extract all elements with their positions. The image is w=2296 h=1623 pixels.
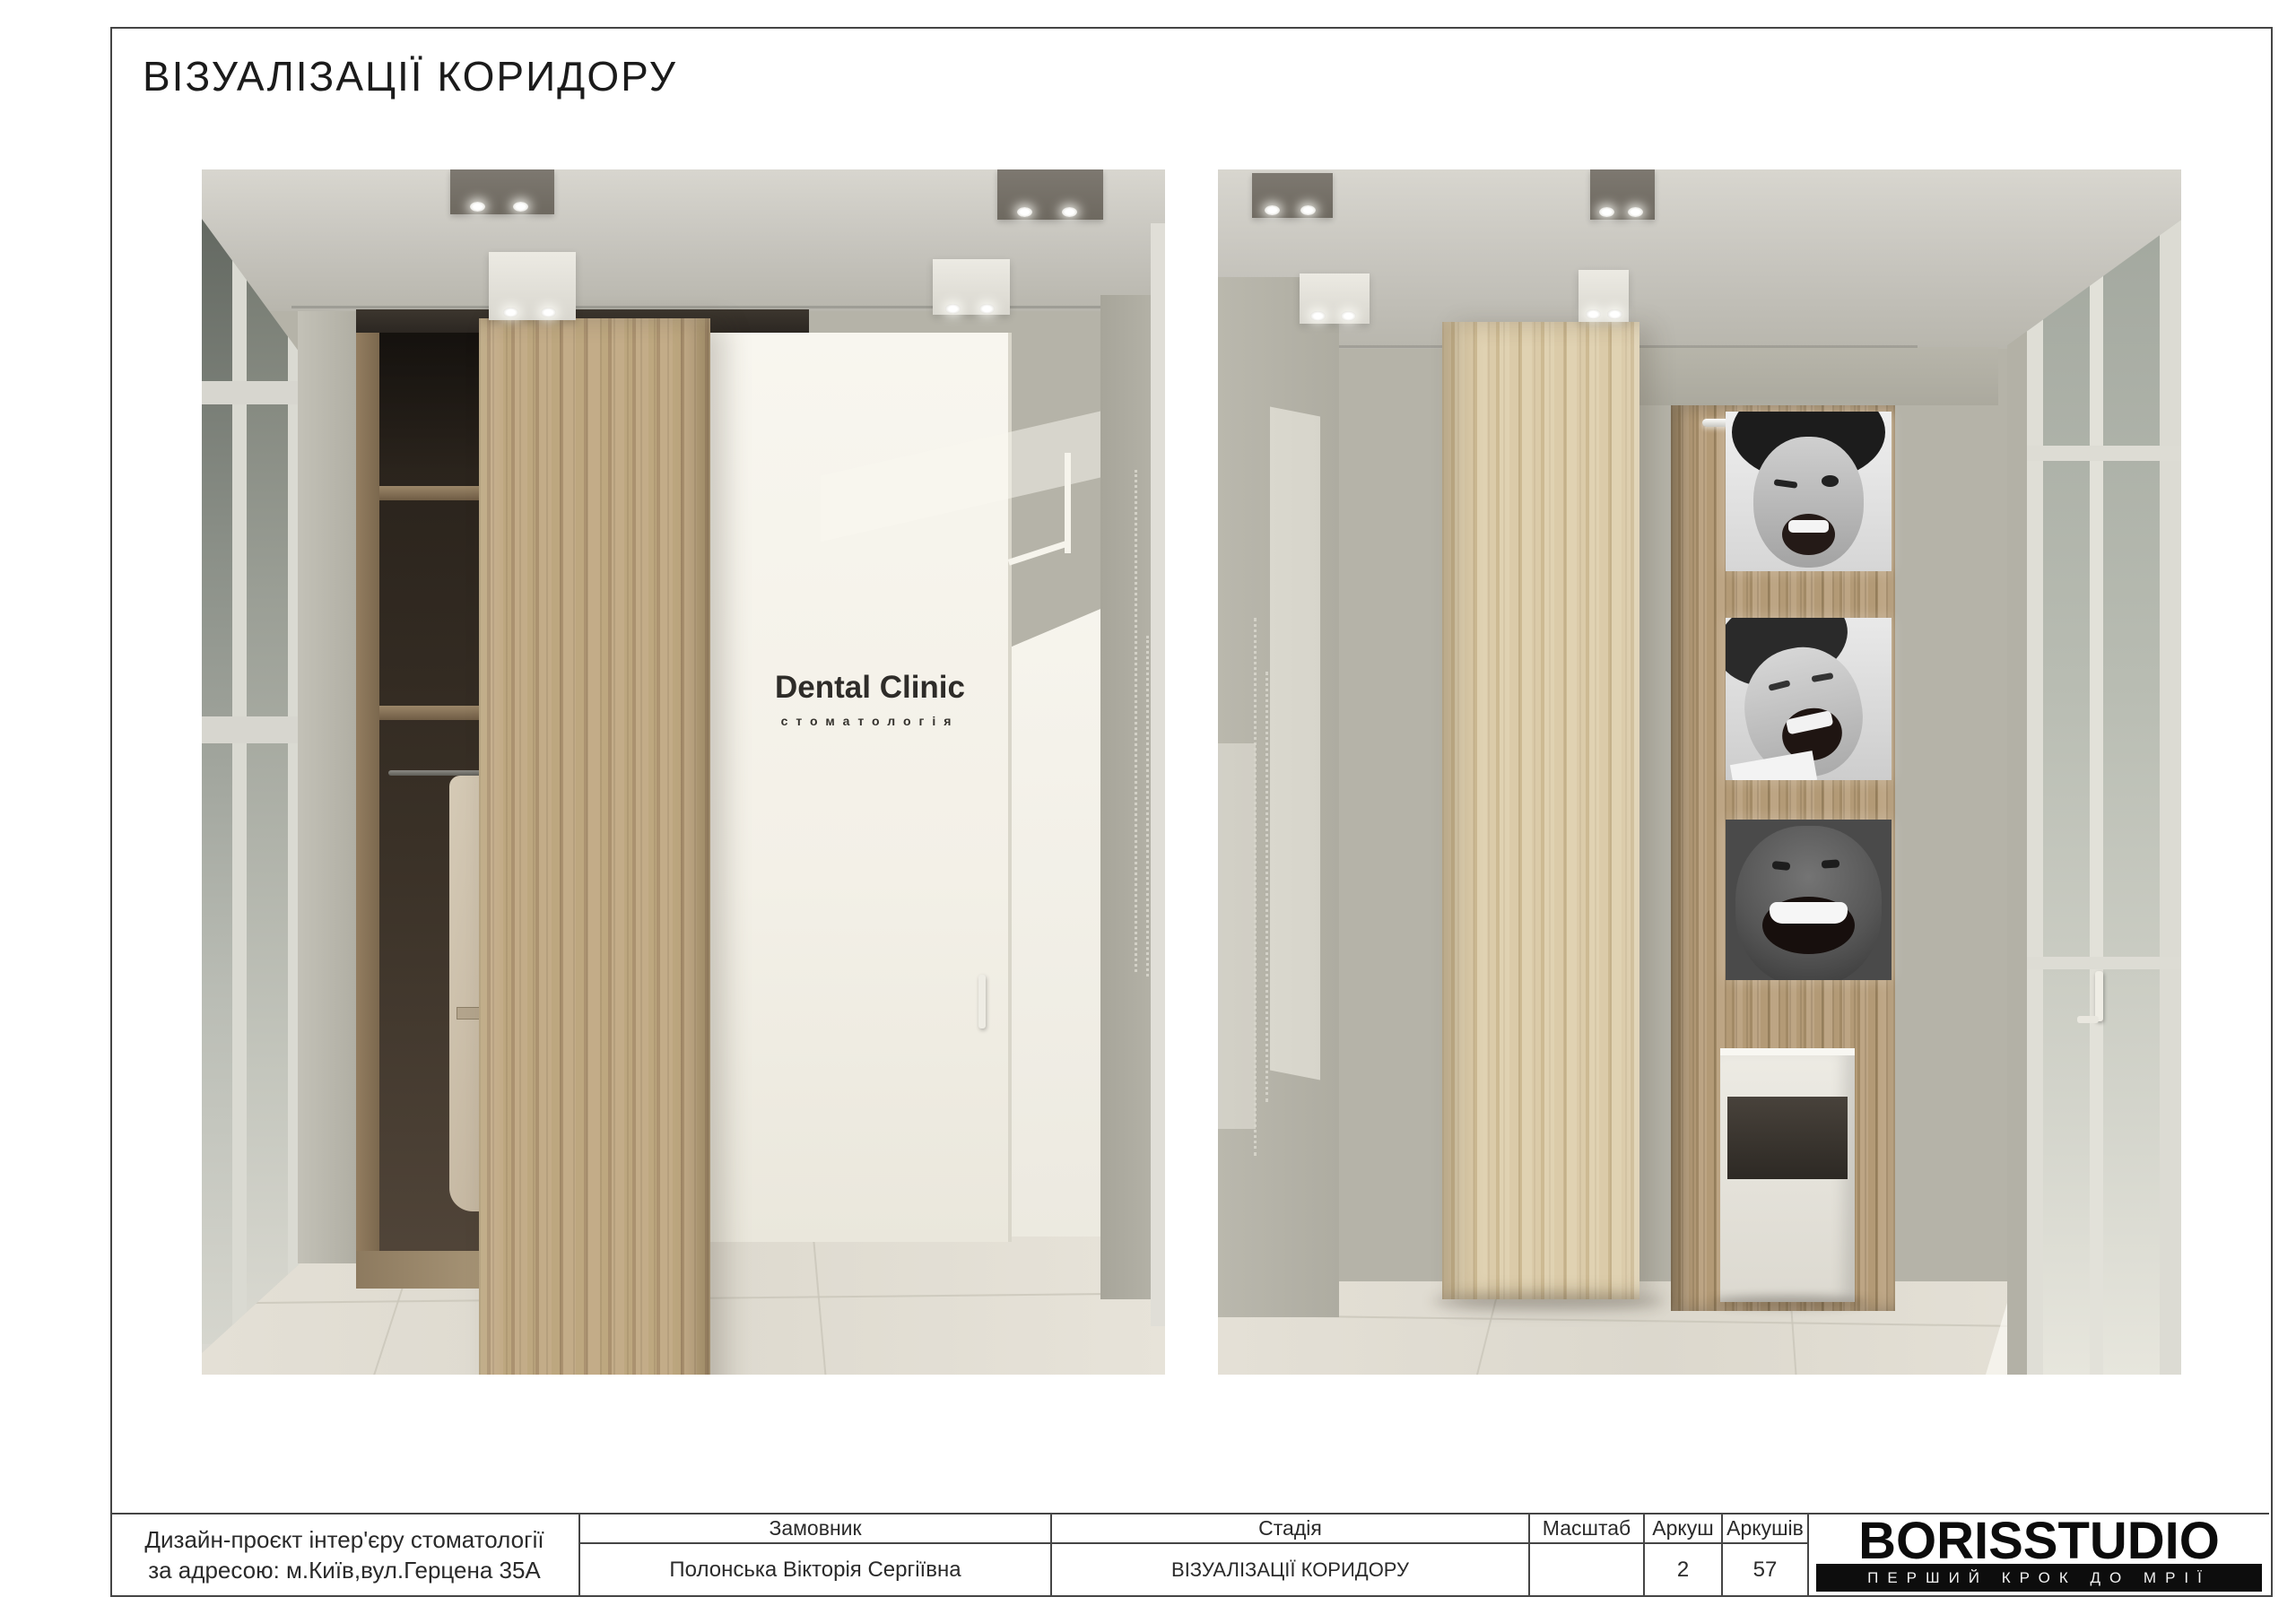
light-spot-icon	[945, 304, 961, 314]
light-spot-icon	[1310, 311, 1326, 321]
photo3-eye	[1822, 859, 1840, 868]
ceiling-light-box	[489, 252, 576, 320]
door-sign: Dental Clinic стоматологія	[744, 670, 996, 728]
portrait-photo-1	[1726, 412, 1892, 571]
light-spot-icon	[1607, 309, 1622, 319]
wood-column	[1442, 322, 1639, 1299]
portrait-photo-2	[1726, 618, 1892, 780]
glass-pane	[247, 169, 288, 1375]
light-spot-icon	[513, 202, 528, 212]
ceiling-light-box	[1578, 270, 1629, 322]
window-frame-bar	[2027, 220, 2043, 1375]
window-frame-bar	[2160, 220, 2181, 1375]
roller-blind-chain	[1265, 672, 1268, 1102]
light-spot-icon	[503, 308, 518, 317]
window-wall-right	[2007, 220, 2181, 1375]
stage-label: Стадія	[1052, 1515, 1528, 1544]
project-description-line2: за адресою: м.Київ,вул.Герцена 35А	[110, 1555, 578, 1585]
light-spot-icon	[1300, 205, 1316, 215]
scale-cell: Масштаб	[1530, 1515, 1645, 1595]
pedestal-floor-shadow	[1713, 1296, 1865, 1308]
photo1-eye	[1822, 475, 1839, 486]
title-block: Дизайн-проєкт інтер'єру стоматології за …	[110, 1513, 2269, 1595]
roller-blind-chain	[1146, 636, 1149, 976]
scale-label: Масштаб	[1530, 1515, 1643, 1544]
window-transom	[202, 716, 302, 743]
light-spot-icon	[1341, 311, 1356, 321]
photo2-teeth	[1786, 711, 1833, 736]
ceiling-light-box	[450, 169, 554, 214]
pedestal-dark-inset	[1727, 1097, 1848, 1179]
sunlight-band	[1218, 743, 1256, 1129]
light-spot-icon	[1017, 207, 1032, 217]
door-handle-lever	[2077, 1016, 2099, 1023]
sheets-total-cell: Аркушів 57	[1723, 1515, 1809, 1595]
sheet-number-cell: Аркуш 2	[1645, 1515, 1723, 1595]
window-frame-bar	[2090, 220, 2103, 1375]
portrait-photo-3	[1726, 820, 1892, 980]
sunlight-bracket-line	[1065, 453, 1071, 553]
pedestal-unit	[1720, 1048, 1855, 1302]
pedestal-top-face	[1720, 1048, 1855, 1055]
light-spot-icon	[1628, 207, 1643, 217]
door-handle	[2095, 971, 2103, 1021]
light-spot-icon	[1586, 309, 1601, 319]
ceiling-light-box	[1252, 173, 1333, 218]
stage-value: ВІЗУАЛІЗАЦІЇ КОРИДОРУ	[1052, 1544, 1528, 1595]
studio-logo-tagline: ПЕРШИЙ КРОК ДО МРІЇ	[1867, 1569, 2211, 1587]
page-title: ВІЗУАЛІЗАЦІЇ КОРИДОРУ	[143, 52, 677, 100]
client-label: Замовник	[580, 1515, 1050, 1544]
door-jamb	[2007, 220, 2027, 1375]
ceiling-light-box	[933, 259, 1010, 315]
light-spot-icon	[1265, 205, 1280, 215]
window-wall-left	[202, 169, 302, 1375]
window-frame-sliver	[1151, 223, 1165, 1326]
light-spot-icon	[1062, 207, 1077, 217]
scale-value	[1530, 1544, 1643, 1595]
roller-blind-chain	[1254, 618, 1257, 1156]
sliding-wood-panel	[479, 318, 710, 1375]
wardrobe-side-wood-edge	[356, 311, 379, 1289]
window-transom	[202, 381, 302, 404]
sheet-number-label: Аркуш	[1645, 1515, 1721, 1544]
light-spot-icon	[1599, 207, 1614, 217]
sunlight-bracket-line	[1008, 540, 1070, 565]
roller-blind-chain	[1135, 470, 1137, 972]
photo3-eye	[1771, 860, 1790, 870]
ceiling-soffit	[1604, 347, 1998, 405]
project-description-cell: Дизайн-проєкт інтер'єру стоматології за …	[110, 1515, 580, 1595]
render-corridor-view-1: Dental Clinic стоматологія	[202, 169, 1165, 1375]
photo3-mouth	[1762, 897, 1856, 954]
drawing-sheet: ВІЗУАЛІЗАЦІЇ КОРИДОРУ	[110, 27, 2273, 1597]
door-sign-subtitle: стоматологія	[744, 714, 996, 728]
render-corridor-view-2	[1218, 169, 2181, 1375]
door-sign-title: Dental Clinic	[744, 670, 996, 706]
stage-cell: Стадія ВІЗУАЛІЗАЦІЇ КОРИДОРУ	[1052, 1515, 1530, 1595]
sheets-total-label: Аркушів	[1723, 1515, 1807, 1544]
sheet-number-value: 2	[1645, 1544, 1721, 1595]
studio-logo: BORISSTUDIO ПЕРШИЙ КРОК ДО МРІЇ	[1809, 1515, 2269, 1595]
client-cell: Замовник Полонська Вікторія Сергіївна	[580, 1515, 1052, 1595]
photo3-teeth	[1770, 902, 1848, 923]
glass-pane	[202, 169, 232, 1375]
light-spot-icon	[470, 202, 485, 212]
project-description-line1: Дизайн-проєкт інтер'єру стоматології	[110, 1524, 578, 1555]
sheets-total-value: 57	[1723, 1544, 1807, 1595]
photo1-teeth	[1788, 520, 1829, 533]
photo1-mouth	[1782, 514, 1835, 555]
studio-logo-tagline-bar: ПЕРШИЙ КРОК ДО МРІЇ	[1816, 1564, 2262, 1592]
sunlight-band	[1270, 407, 1320, 1081]
light-spot-icon	[979, 304, 995, 314]
column-floor-shadow	[1431, 1292, 1665, 1310]
door-handle	[978, 975, 986, 1028]
wall-pilaster	[298, 311, 357, 1263]
window-frame-bar	[232, 169, 247, 1375]
window-transom	[2027, 446, 2181, 461]
client-value: Полонська Вікторія Сергіївна	[580, 1544, 1050, 1595]
light-spot-icon	[541, 308, 556, 317]
studio-logo-wordmark: BORISSTUDIO	[1816, 1511, 2262, 1571]
ceiling-light-box	[997, 169, 1103, 220]
ceiling-light-box	[1300, 273, 1370, 324]
window-transom	[2027, 957, 2181, 969]
ceiling-light-box	[1590, 169, 1655, 220]
